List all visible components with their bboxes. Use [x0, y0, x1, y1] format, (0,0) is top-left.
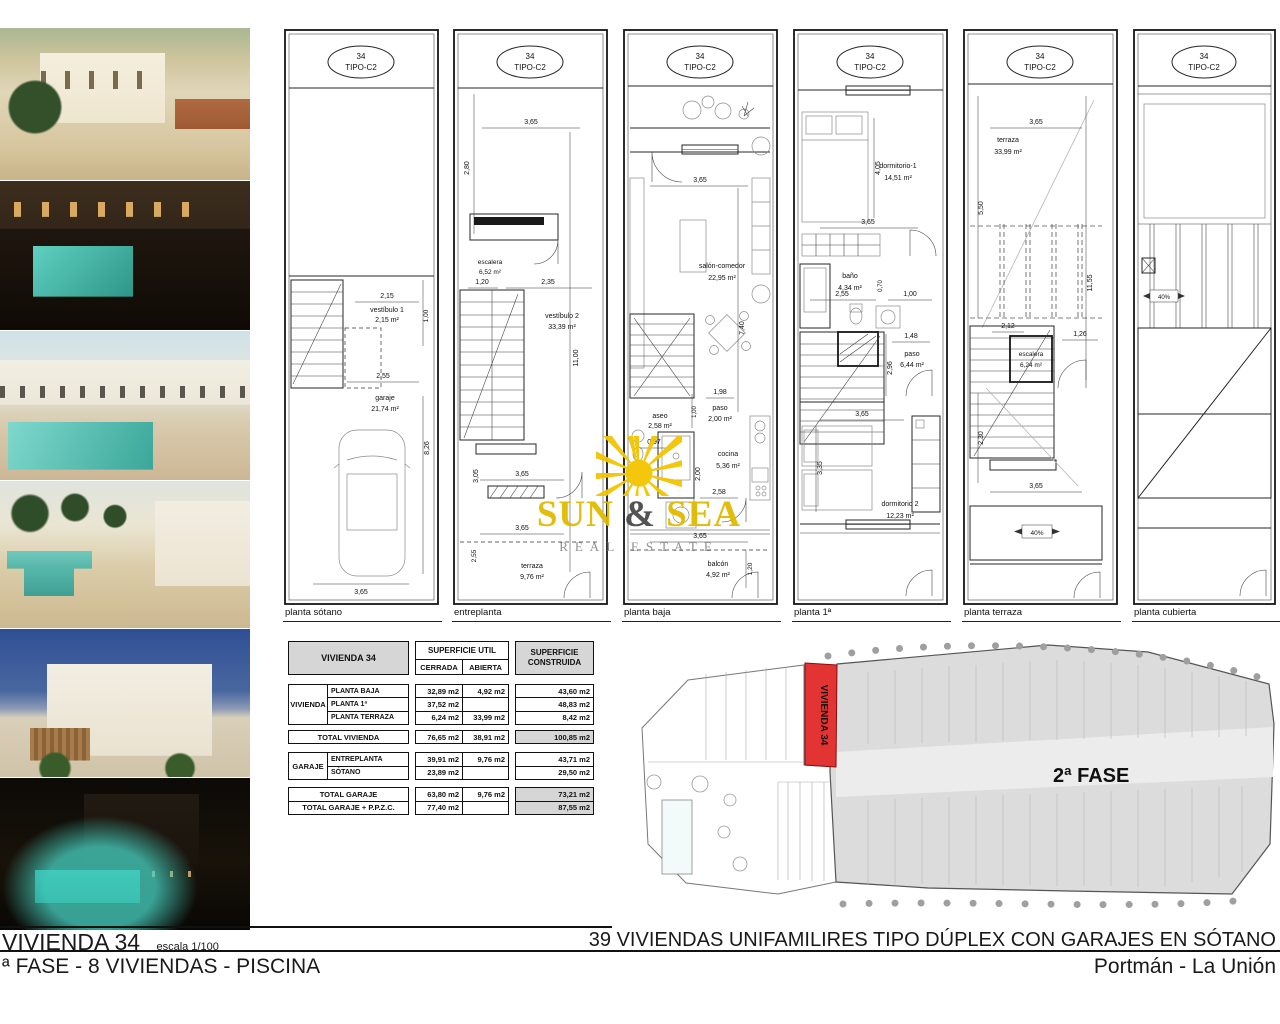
cell-abierta	[462, 802, 508, 815]
type-badge	[1007, 46, 1073, 78]
badge-type: TIPO-C2	[1188, 63, 1220, 72]
slope-marker: 40%	[1143, 290, 1185, 302]
bed-icon	[802, 112, 868, 222]
room-label: terraza	[997, 137, 1019, 144]
type-badge	[837, 46, 903, 78]
room-label: baño	[842, 273, 858, 280]
group-vivienda-labels: VIVIENDA PLANTA BAJA PLANTA 1ª PLANTA TE…	[288, 684, 409, 725]
group-name: VIVIENDA	[289, 685, 328, 724]
cell-construida: 100,85 m2	[516, 731, 593, 743]
cell-construida: 8,42 m2	[516, 712, 593, 724]
room-label: terraza	[521, 563, 543, 570]
room-label: paso	[904, 351, 919, 358]
dim-label: 2,00	[695, 467, 702, 481]
total-label: TOTAL GARAJE + P.P.Z.C.	[289, 801, 408, 815]
room-area: 21,74 m²	[371, 406, 399, 413]
photo-render-pool-day	[0, 331, 250, 480]
room-label: dormitorio-1	[879, 163, 916, 170]
badge-number: 34	[357, 52, 366, 61]
type-badge	[1172, 46, 1236, 78]
table-header-construida: SUPERFICIE CONSTRUIDA	[515, 641, 594, 675]
dim-label: 2,96	[887, 361, 894, 375]
cell-abierta	[462, 698, 508, 710]
caption-planta-1: planta 1ª	[792, 607, 951, 622]
cell-cerrada: 23,89 m2	[416, 767, 462, 780]
table-title-label: VIVIENDA 34	[321, 653, 376, 663]
badge-type: TIPO-C2	[1024, 63, 1056, 72]
site-plan: VIVIENDA 34 2ª FASE	[628, 632, 1278, 932]
dim-label: 1,00	[903, 291, 917, 298]
floorplan-entreplanta-drawing: 34 TIPO-C2 3,65 2,80 escalera 6,52 m² 1,…	[452, 28, 609, 606]
dim-label: 3,65	[861, 219, 875, 226]
bed-icon	[802, 426, 872, 510]
dim-label: 5,50	[978, 201, 985, 215]
photo-render-promenade	[0, 481, 250, 628]
dim-label: 3,65	[1029, 483, 1043, 490]
dim-label: 0,97	[647, 439, 661, 446]
group-name: GARAJE	[289, 753, 328, 779]
caption-planta-sotano: planta sótano	[283, 607, 442, 622]
room-label: garaje	[375, 395, 395, 402]
room-area: 6,24 m²	[1020, 362, 1043, 369]
dim-label: 3,65	[354, 589, 368, 596]
sheet-scale: escala 1/100	[156, 941, 218, 953]
slope-label: 40%	[1158, 295, 1171, 301]
type-badge	[328, 46, 394, 78]
pool-shape	[662, 800, 692, 874]
cell-abierta	[462, 767, 508, 780]
plants-icon	[683, 96, 754, 119]
dim-label: 2,35	[541, 279, 555, 286]
dim-label: 3,35	[817, 461, 824, 475]
dim-label: 3,65	[855, 411, 869, 418]
drawing-sheet: 34 TIPO-C2 2,15 vestíbulo 1 2,15 m² 1,00…	[0, 0, 1280, 1024]
dim-label: 11,00	[573, 349, 580, 366]
project-title-text: 39 VIVIENDAS UNIFAMILIRES TIPO DÚPLEX CO…	[589, 929, 1276, 951]
dim-label: 2,55	[376, 373, 390, 380]
cell-construida: 73,21 m2	[516, 788, 593, 801]
type-badge	[667, 46, 733, 78]
badge-number: 34	[1036, 52, 1045, 61]
photo-render-facade	[0, 629, 250, 777]
floorplan-sotano-drawing: 34 TIPO-C2 2,15 vestíbulo 1 2,15 m² 1,00…	[283, 28, 440, 606]
cell-construida: 29,50 m2	[516, 767, 593, 780]
room-label: vestíbulo 1	[370, 307, 404, 314]
dim-label: 11,55	[1087, 274, 1094, 291]
group-garaje-util: 39,91 m29,76 m2 23,89 m2	[415, 752, 509, 780]
cell-cerrada: 76,65 m2	[416, 731, 462, 743]
dim-label: 2,55	[835, 291, 849, 298]
dim-label: 1,00	[692, 406, 698, 418]
cell-abierta: 9,76 m2	[462, 788, 508, 801]
photo-render-aerial-day	[0, 28, 250, 180]
caption-planta-cubierta: planta cubierta	[1132, 607, 1280, 622]
room-area: 6,44 m²	[900, 362, 924, 369]
phase-subtitle: ª FASE - 8 VIVIENDAS - PISCINA	[2, 955, 320, 979]
cell-construida: 43,60 m2	[516, 685, 593, 697]
dim-label: 2,15	[380, 293, 394, 300]
cell-cerrada: 32,89 m2	[416, 685, 462, 697]
room-area: 33,39 m²	[548, 324, 576, 331]
badge-number: 34	[1200, 52, 1209, 61]
room-area: 2,15 m²	[375, 317, 399, 324]
photo-render-pool-night	[0, 778, 250, 930]
cell-abierta: 38,91 m2	[462, 731, 508, 743]
group-garaje-labels: GARAJE ENTREPLANTA SÓTANO	[288, 752, 409, 780]
type-badge	[497, 46, 563, 78]
floorplan-cubierta-drawing: 34 TIPO-C2 40%	[1132, 28, 1278, 606]
floorplan-sotano: 34 TIPO-C2 2,15 vestíbulo 1 2,15 m² 1,00…	[283, 28, 440, 606]
dim-label: 3,65	[515, 471, 529, 478]
dim-label: 1,20	[475, 279, 489, 286]
room-label: salón-comedor	[699, 263, 746, 270]
cell-cerrada: 39,91 m2	[416, 753, 462, 766]
cell-construida: 43,71 m2	[516, 753, 593, 766]
phase-label: 2ª FASE	[1053, 765, 1129, 787]
table-title: VIVIENDA 34	[288, 641, 409, 675]
caption-planta-baja: planta baja	[622, 607, 781, 622]
floorplan-terraza: 34 TIPO-C2 3,65 terraza 33,99 m² 5,50 11…	[962, 28, 1119, 606]
cell-cerrada: 37,52 m2	[416, 698, 462, 710]
dim-label: 3,65	[524, 119, 538, 126]
row-label: SÓTANO	[328, 766, 408, 780]
floorplan-cubierta: 34 TIPO-C2 40%	[1132, 28, 1278, 606]
header-util-label: SUPERFICIE UTIL	[416, 642, 508, 660]
room-label: escalera	[478, 259, 503, 266]
dim-label: 1,00	[423, 309, 430, 322]
room-area: 2,00 m²	[708, 416, 732, 423]
dim-label: 1,98	[713, 389, 727, 396]
location-subtitle-text: Portmán - La Unión	[1094, 955, 1276, 978]
total-vivienda-construida: 100,85 m2	[515, 730, 594, 744]
badge-number: 34	[866, 52, 875, 61]
row-label: ENTREPLANTA	[328, 753, 408, 766]
tree-row	[843, 900, 1248, 905]
cell-construida: 87,55 m2	[516, 802, 593, 815]
plot-label: VIVIENDA 34	[818, 685, 829, 746]
badge-type: TIPO-C2	[514, 63, 546, 72]
room-label: balcón	[708, 561, 729, 568]
floorplan-entreplanta: 34 TIPO-C2 3,65 2,80 escalera 6,52 m² 1,…	[452, 28, 609, 606]
room-label: dormitorio 2	[882, 501, 919, 508]
project-title: 39 VIVIENDAS UNIFAMILIRES TIPO DÚPLEX CO…	[589, 929, 1276, 952]
titleblock-rule-left	[0, 926, 612, 928]
row-label: PLANTA TERRAZA	[328, 711, 408, 724]
dim-label: 1,20	[747, 562, 754, 575]
room-area: 12,23 m²	[886, 513, 914, 520]
pergola-beams	[1138, 224, 1271, 328]
dim-label: 3,65	[693, 177, 707, 184]
floorplan-baja-drawing: 34 TIPO-C2 3,65 salón-comedor 22,95 m² 7…	[622, 28, 779, 606]
dim-label: 0,70	[878, 280, 884, 292]
dim-label: 1,26	[1073, 331, 1087, 338]
room-area: 5,36 m²	[716, 463, 740, 470]
room-area: 9,76 m²	[520, 574, 544, 581]
dim-label: 3,65	[515, 525, 529, 532]
sheet-title: VIVIENDA 34 escala 1/100	[2, 929, 219, 956]
pergola-beams	[970, 224, 1102, 320]
caption-entreplanta: entreplanta	[452, 607, 611, 622]
group-vivienda-util: 32,89 m24,92 m2 37,52 m2 6,24 m233,99 m2	[415, 684, 509, 725]
cell-abierta: 33,99 m2	[462, 712, 508, 724]
sheet-title-text: VIVIENDA 34	[2, 929, 140, 955]
dim-label: 7,40	[739, 321, 746, 335]
header-cerrada-label: CERRADA	[416, 660, 462, 674]
location-subtitle: Portmán - La Unión	[1094, 955, 1276, 979]
dim-label: 3,65	[693, 533, 707, 540]
dim-label: 3,65	[1029, 119, 1043, 126]
phase-subtitle-text: ª FASE - 8 VIVIENDAS - PISCINA	[2, 955, 320, 978]
cell-abierta: 4,92 m2	[462, 685, 508, 697]
badge-number: 34	[526, 52, 535, 61]
floorplan-terraza-drawing: 34 TIPO-C2 3,65 terraza 33,99 m² 5,50 11…	[962, 28, 1119, 606]
dim-label: 2,12	[1001, 323, 1015, 330]
slope-marker: 40%	[1014, 525, 1060, 538]
cell-cerrada: 77,40 m2	[416, 802, 462, 815]
room-area: 14,51 m²	[884, 175, 912, 182]
slope-label: 40%	[1030, 530, 1043, 537]
photo-render-pool-night-aerial	[0, 181, 250, 330]
dim-label: 2,30	[978, 431, 985, 445]
total-garaje-util: 63,80 m29,76 m2 77,40 m2	[415, 787, 509, 815]
room-label: cocina	[718, 451, 738, 458]
badge-type: TIPO-C2	[345, 63, 377, 72]
total-vivienda-label: TOTAL VIVIENDA	[288, 730, 409, 744]
header-abierta-label: ABIERTA	[462, 660, 508, 674]
cell-abierta: 9,76 m2	[462, 753, 508, 766]
group-vivienda-construida: 43,60 m2 48,83 m2 8,42 m2	[515, 684, 594, 725]
table-header-util: SUPERFICIE UTIL CERRADA ABIERTA	[415, 641, 509, 675]
floorplan-baja: 34 TIPO-C2 3,65 salón-comedor 22,95 m² 7…	[622, 28, 779, 606]
car-icon	[334, 430, 410, 576]
cell-cerrada: 6,24 m2	[416, 712, 462, 724]
room-area: 2,58 m²	[648, 423, 672, 430]
dim-label: 4,05	[875, 161, 882, 175]
dim-label: 8,26	[424, 441, 431, 455]
badge-number: 34	[696, 52, 705, 61]
badge-type: TIPO-C2	[854, 63, 886, 72]
total-garaje-construida: 73,21 m2 87,55 m2	[515, 787, 594, 815]
total-garaje-labels: TOTAL GARAJE TOTAL GARAJE + P.P.Z.C.	[288, 787, 409, 815]
cell-construida: 48,83 m2	[516, 698, 593, 710]
caption-planta-terraza: planta terraza	[962, 607, 1121, 622]
floorplan-primera: 34 TIPO-C2 dormitorio-1 14,51 m² 4,05 3,…	[792, 28, 949, 606]
room-label: aseo	[652, 413, 667, 420]
row-label: PLANTA BAJA	[328, 685, 408, 697]
floorplan-primera-drawing: 34 TIPO-C2 dormitorio-1 14,51 m² 4,05 3,…	[792, 28, 949, 606]
total-label: TOTAL GARAJE	[289, 788, 408, 801]
dim-label: 2,55	[471, 549, 478, 562]
room-area: 4,92 m²	[706, 572, 730, 579]
room-area: 6,52 m²	[479, 269, 502, 276]
group-garaje-construida: 43,71 m2 29,50 m2	[515, 752, 594, 780]
row-label: PLANTA 1ª	[328, 697, 408, 710]
room-label: escalera	[1019, 351, 1044, 358]
dim-label: 3,05	[473, 469, 480, 483]
cell-cerrada: 63,80 m2	[416, 788, 462, 801]
room-label: vestíbulo 2	[545, 313, 579, 320]
dim-label: 2,58	[712, 489, 726, 496]
dim-label: 2,80	[464, 161, 471, 175]
dim-label: 1,48	[904, 333, 918, 340]
room-label: paso	[712, 405, 727, 412]
total-vivienda-util: 76,65 m2 38,91 m2	[415, 730, 509, 744]
badge-type: TIPO-C2	[684, 63, 716, 72]
room-area: 22,95 m²	[708, 275, 736, 282]
room-area: 33,99 m²	[994, 149, 1022, 156]
